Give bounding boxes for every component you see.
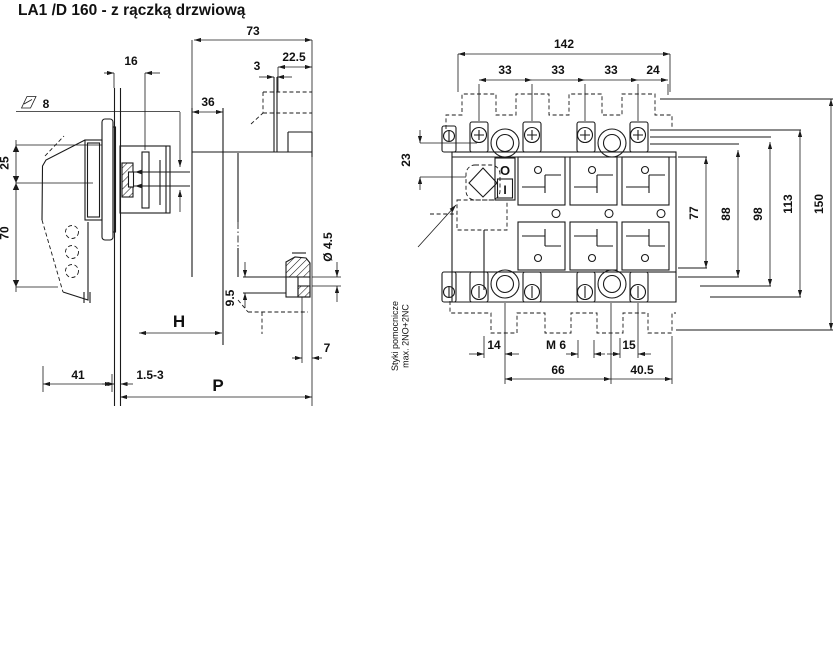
dim-h88: 88 <box>719 207 733 221</box>
foot-hatch-lower <box>298 286 310 297</box>
front-view: 142 33 33 33 24 23 77 88 98 113 150 14 M… <box>390 37 833 384</box>
contact-symbol <box>522 229 561 246</box>
dim-body-depth: 36 <box>201 95 215 109</box>
switch-off-marking: O <box>500 163 510 178</box>
dim-pitch-aux: 24 <box>646 63 660 77</box>
dim-b15: 15 <box>622 338 636 352</box>
mounting-bosses <box>491 129 626 298</box>
dim-width-total: 142 <box>554 37 574 51</box>
lever-hole <box>66 246 79 259</box>
handle-diamond-icon <box>469 168 497 197</box>
lever-hole <box>66 265 79 278</box>
dim-door-thickness: 1.5-3 <box>136 368 164 382</box>
aux-note-line2: max. 2NO+2NC <box>401 304 411 368</box>
foot-arm <box>243 277 286 293</box>
handle-lever <box>42 140 85 220</box>
contact-symbol <box>574 229 613 246</box>
dim-h113: 113 <box>781 194 795 214</box>
side-view-dimensions <box>13 40 341 406</box>
contact-symbol <box>522 175 561 193</box>
dim-foot-width: 7 <box>324 341 331 355</box>
contact-symbol <box>626 229 665 246</box>
dim-hole-diameter: Ø 4.5 <box>321 232 335 262</box>
shaft-disc <box>142 152 149 208</box>
dim-shaft-square: 8 <box>43 97 50 111</box>
dim-handle-depth: 41 <box>71 368 85 382</box>
dim-label-P: P <box>212 376 223 395</box>
technical-drawing: LA1 /D 160 - z rączką drzwiową <box>0 0 833 654</box>
front-view-geometry <box>430 94 833 333</box>
cover-profile-bottom <box>450 301 676 333</box>
mounting-bracket <box>288 132 312 157</box>
drawing-page: LA1 /D 160 - z rączką drzwiową <box>0 0 833 654</box>
dim-mounting-thread: M 6 <box>546 338 566 352</box>
dim-label-H: H <box>173 312 185 331</box>
dim-pole-pitch-3: 33 <box>604 63 618 77</box>
dim-h77: 77 <box>687 206 701 220</box>
dim-handle-offset: 23 <box>399 153 413 167</box>
dim-depth-total: 73 <box>246 24 260 38</box>
lever-hole <box>66 226 79 239</box>
square-symbol-icon <box>22 97 37 109</box>
dim-b40-5: 40.5 <box>630 363 654 377</box>
dim-bracket-thickness: 3 <box>254 59 261 73</box>
dim-h98: 98 <box>751 207 765 221</box>
lever-grip-marks <box>84 292 90 303</box>
aux-note-line1: Styki pomocnicze <box>390 301 400 371</box>
dim-pole-pitch-1: 33 <box>498 63 512 77</box>
dim-offset-25: 25 <box>0 156 12 170</box>
dim-b66: 66 <box>551 363 565 377</box>
handle-plate <box>102 119 113 240</box>
dim-handle-length: 70 <box>0 226 12 240</box>
dim-b14: 14 <box>487 338 501 352</box>
dim-h150: 150 <box>812 194 826 214</box>
dim-pole-pitch-2: 33 <box>551 63 565 77</box>
aux-block-phantom <box>457 200 507 230</box>
side-view: 73 22.5 3 16 36 8 25 70 41 1.5-3 H P 9.5… <box>0 24 452 406</box>
front-view-dimensions <box>418 54 831 384</box>
pole-compartments <box>518 157 669 270</box>
drawing-title: LA1 /D 160 - z rączką drzwiową <box>18 2 246 19</box>
switch-on-marking: I <box>503 183 506 197</box>
dim-flange-depth: 22.5 <box>282 50 306 64</box>
dim-foot-offset: 9.5 <box>223 289 237 306</box>
dim-shaft-16: 16 <box>124 54 138 68</box>
contact-symbol <box>626 175 665 193</box>
contact-symbol <box>574 175 613 193</box>
bracket-plate <box>274 77 277 152</box>
foot-hatch-upper <box>286 257 310 277</box>
